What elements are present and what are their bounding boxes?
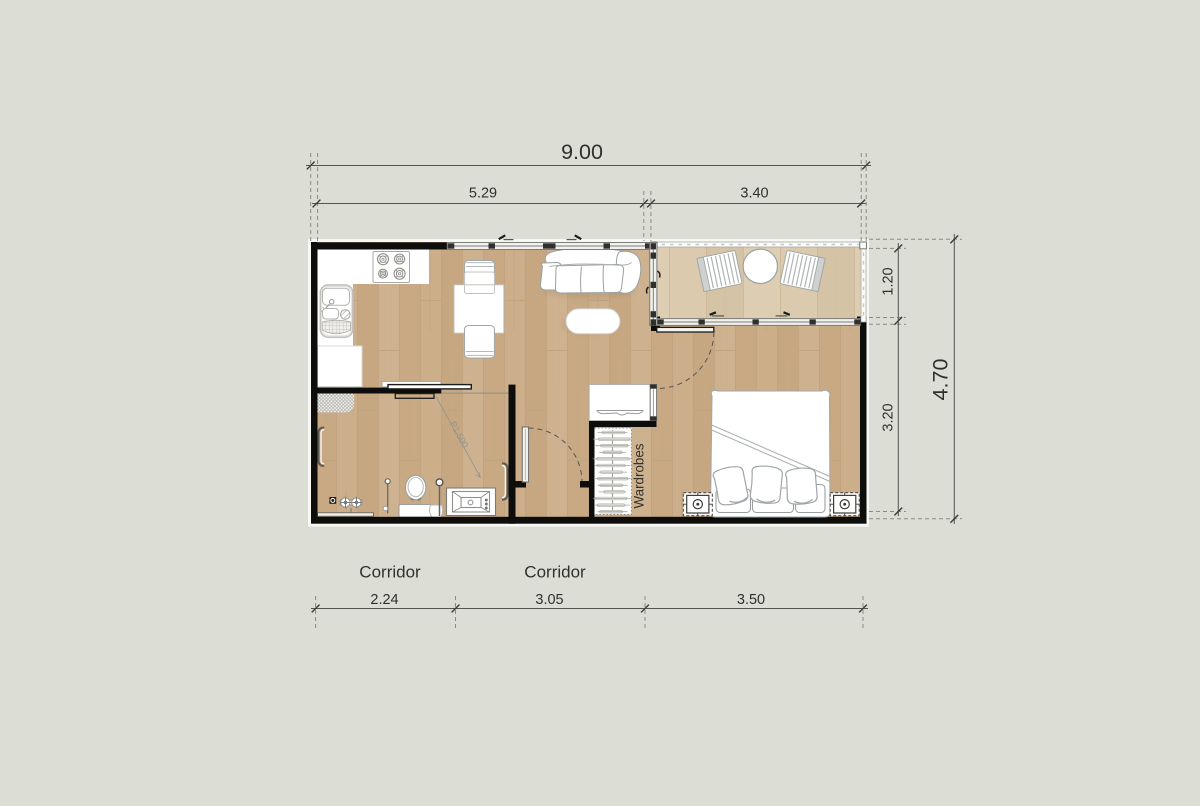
svg-text:2.24: 2.24 — [370, 592, 398, 608]
svg-text:Corridor: Corridor — [359, 563, 421, 582]
svg-text:3.40: 3.40 — [740, 186, 768, 202]
svg-text:Corridor: Corridor — [524, 563, 586, 582]
svg-text:3.50: 3.50 — [737, 592, 765, 608]
svg-text:3.05: 3.05 — [535, 592, 563, 608]
svg-text:4.70: 4.70 — [929, 359, 953, 401]
svg-text:9.00: 9.00 — [561, 140, 603, 164]
svg-text:Wardrobes: Wardrobes — [632, 443, 647, 508]
svg-text:5.29: 5.29 — [469, 186, 497, 202]
svg-text:3.20: 3.20 — [880, 403, 896, 431]
svg-text:1.20: 1.20 — [880, 267, 896, 295]
